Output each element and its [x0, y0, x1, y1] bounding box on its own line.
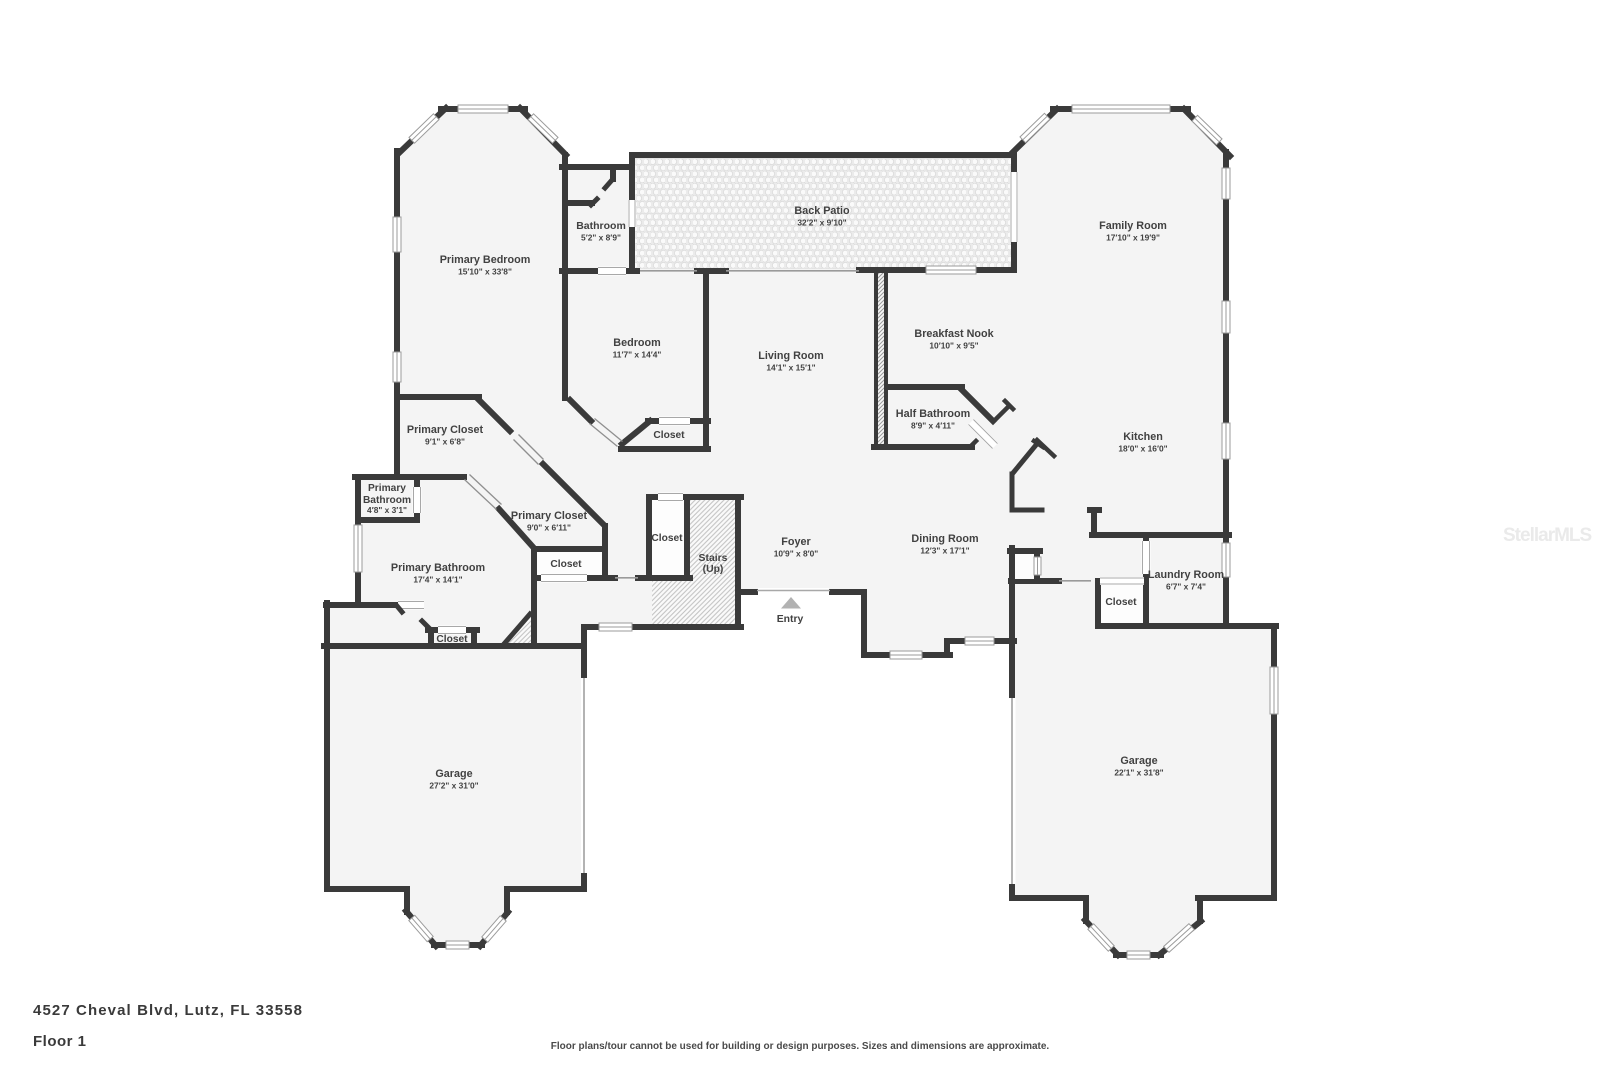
svg-text:Floor 1: Floor 1 [33, 1033, 87, 1050]
svg-text:12′3" x 17′1": 12′3" x 17′1" [920, 546, 969, 556]
svg-text:32′2" x 9′10": 32′2" x 9′10" [797, 218, 846, 228]
svg-text:Living Room: Living Room [758, 350, 823, 362]
svg-text:Bedroom: Bedroom [613, 337, 660, 349]
svg-text:Floor plans/tour cannot be use: Floor plans/tour cannot be used for buil… [551, 1041, 1050, 1052]
svg-text:15′10" x 33′8": 15′10" x 33′8" [458, 267, 512, 277]
svg-text:Breakfast Nook: Breakfast Nook [914, 328, 994, 340]
svg-text:10′9" x 8′0": 10′9" x 8′0" [774, 549, 819, 559]
svg-text:14′1" x 15′1": 14′1" x 15′1" [766, 363, 815, 373]
svg-text:StellarMLS: StellarMLS [1503, 525, 1592, 546]
svg-text:Closet: Closet [1105, 597, 1137, 608]
svg-text:Entry: Entry [777, 614, 804, 625]
svg-text:Stairs: Stairs [699, 553, 728, 564]
svg-text:Bathroom: Bathroom [576, 220, 626, 232]
svg-text:5′2" x 8′9": 5′2" x 8′9" [581, 233, 621, 243]
svg-text:Garage: Garage [1120, 755, 1157, 767]
svg-text:17′10" x 19′9": 17′10" x 19′9" [1106, 233, 1160, 243]
svg-text:Primary Bathroom: Primary Bathroom [391, 562, 485, 574]
svg-text:27′2" x 31′0": 27′2" x 31′0" [429, 781, 478, 791]
svg-text:Dining Room: Dining Room [911, 533, 978, 545]
svg-text:18′0" x 16′0": 18′0" x 16′0" [1118, 444, 1167, 454]
svg-text:4′8" x 3′1": 4′8" x 3′1" [367, 505, 407, 515]
svg-text:Family Room: Family Room [1099, 220, 1167, 232]
svg-text:8′9" x 4′11": 8′9" x 4′11" [911, 421, 955, 431]
svg-text:Foyer: Foyer [781, 536, 811, 548]
svg-text:11′7" x 14′4": 11′7" x 14′4" [613, 350, 662, 360]
svg-text:Closet: Closet [653, 430, 685, 441]
svg-text:Half Bathroom: Half Bathroom [896, 408, 970, 420]
svg-text:10′10" x 9′5": 10′10" x 9′5" [929, 341, 978, 351]
svg-text:22′1" x 31′8": 22′1" x 31′8" [1114, 768, 1163, 778]
svg-text:Primary: Primary [368, 483, 406, 494]
svg-text:Primary Closet: Primary Closet [511, 510, 588, 522]
svg-text:4527 Cheval Blvd, Lutz, FL 335: 4527 Cheval Blvd, Lutz, FL 33558 [33, 1002, 303, 1019]
svg-text:Primary Closet: Primary Closet [407, 424, 484, 436]
svg-text:9′1" x 6′8": 9′1" x 6′8" [425, 437, 465, 447]
svg-text:Closet: Closet [436, 634, 468, 645]
svg-text:Kitchen: Kitchen [1123, 431, 1163, 443]
svg-text:Back Patio: Back Patio [794, 205, 850, 217]
svg-text:Garage: Garage [435, 768, 472, 780]
svg-text:Primary Bedroom: Primary Bedroom [440, 254, 531, 266]
svg-text:6′7" x 7′4": 6′7" x 7′4" [1166, 582, 1206, 592]
svg-text:Closet: Closet [651, 533, 683, 544]
svg-text:Laundry Room: Laundry Room [1148, 569, 1224, 581]
svg-text:(Up): (Up) [703, 564, 724, 575]
svg-text:9′0" x 6′11": 9′0" x 6′11" [527, 523, 571, 533]
svg-text:Closet: Closet [550, 559, 582, 570]
svg-text:17′4" x 14′1": 17′4" x 14′1" [413, 575, 462, 585]
